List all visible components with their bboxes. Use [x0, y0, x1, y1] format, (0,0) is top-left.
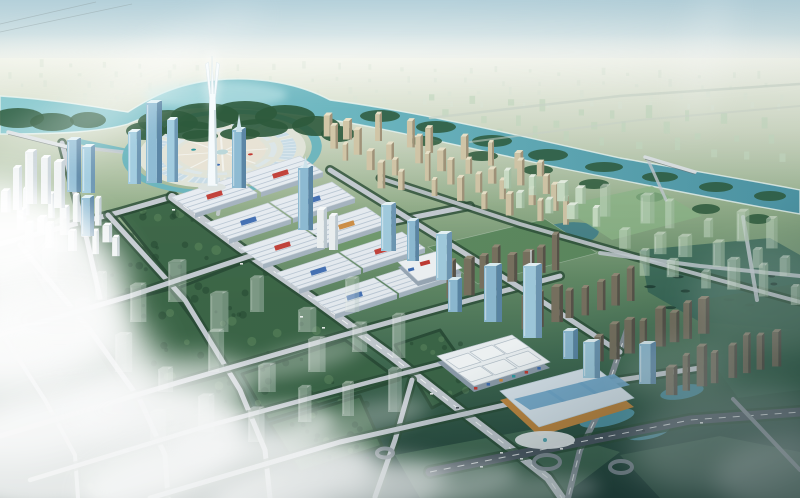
masterplan-aerial-image: Aerial rendering of a planned riverside …: [0, 0, 800, 498]
aerial-render-canvas: [0, 0, 800, 498]
layer-color-grade: [0, 0, 800, 498]
